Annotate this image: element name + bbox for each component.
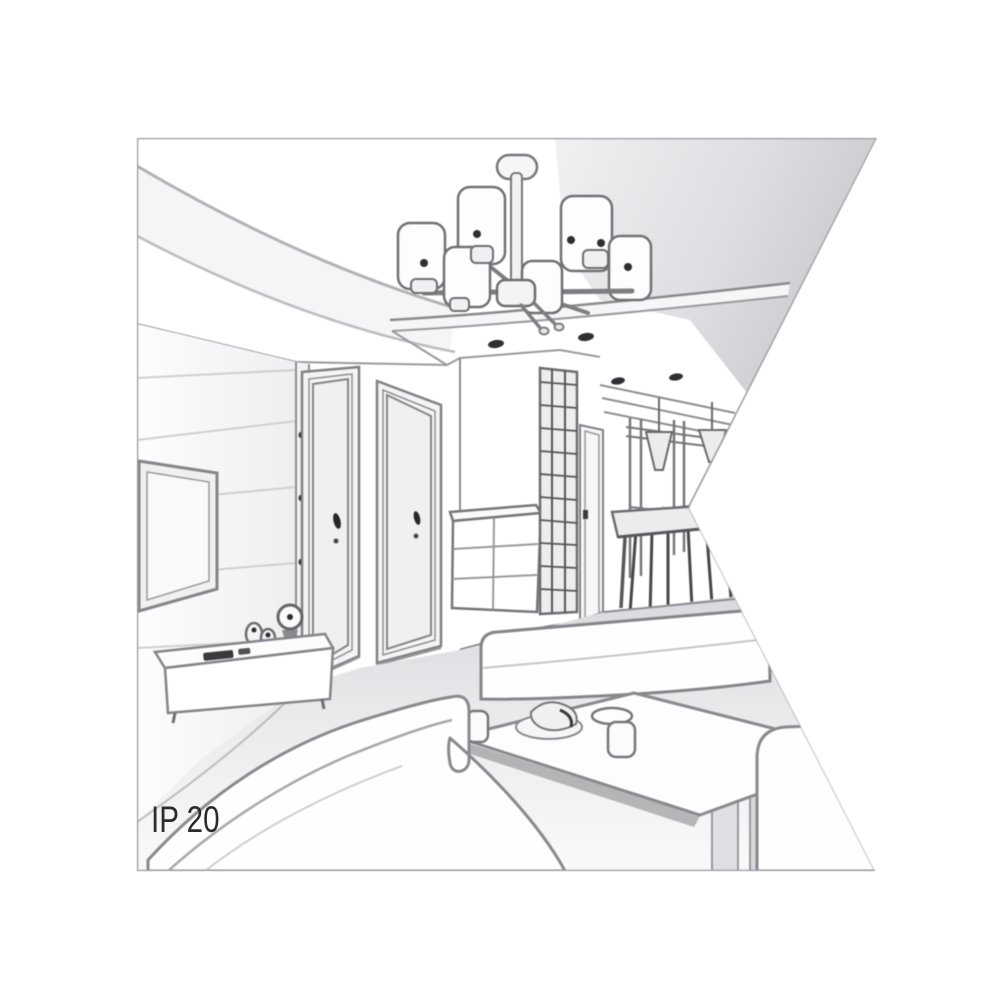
door-handle-icon [583,510,588,519]
chandelier-hub [497,280,535,306]
hallway-chest-of-drawers [450,505,541,612]
ip-rating-label: IP 20 [151,799,220,841]
chandelier-stem [511,173,522,289]
wall-mounted-tv [139,461,217,611]
hallway-door [580,425,603,628]
interior-door-right [377,381,441,665]
slatted-wardrobe [540,368,577,614]
product-illustration: IP 20 [0,0,1000,1000]
room-sketch [0,0,1000,1000]
cup-icon [608,722,635,757]
right-sofa-armrest [757,721,940,871]
